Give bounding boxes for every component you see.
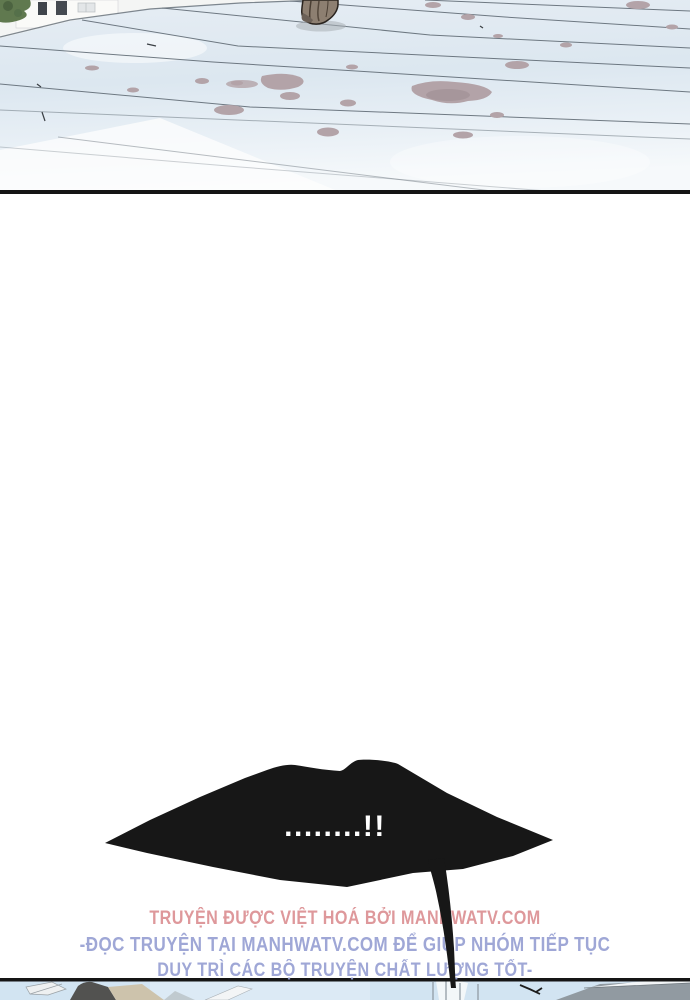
building-window (38, 2, 47, 15)
shout-bubble: ........!! (88, 748, 588, 1000)
shout-bubble-tail (428, 858, 456, 988)
building-window (78, 3, 95, 12)
panel-divider-line (0, 190, 690, 194)
top-panel-artwork (0, 0, 690, 192)
building-window (56, 1, 67, 15)
snow-highlight (390, 136, 650, 188)
shout-bubble-canvas: ........!! (88, 748, 588, 1000)
top-panel-canvas (0, 0, 690, 192)
shout-bubble-text: ........!! (284, 810, 386, 843)
